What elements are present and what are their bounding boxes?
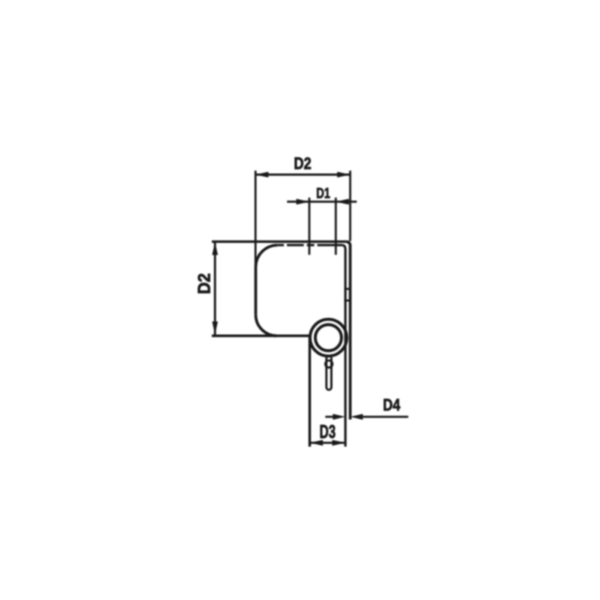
svg-text:D2: D2 — [194, 273, 214, 294]
svg-text:D4: D4 — [383, 395, 401, 414]
svg-text:D2: D2 — [294, 155, 312, 173]
svg-text:D1: D1 — [316, 185, 330, 202]
svg-text:D3: D3 — [320, 421, 336, 442]
